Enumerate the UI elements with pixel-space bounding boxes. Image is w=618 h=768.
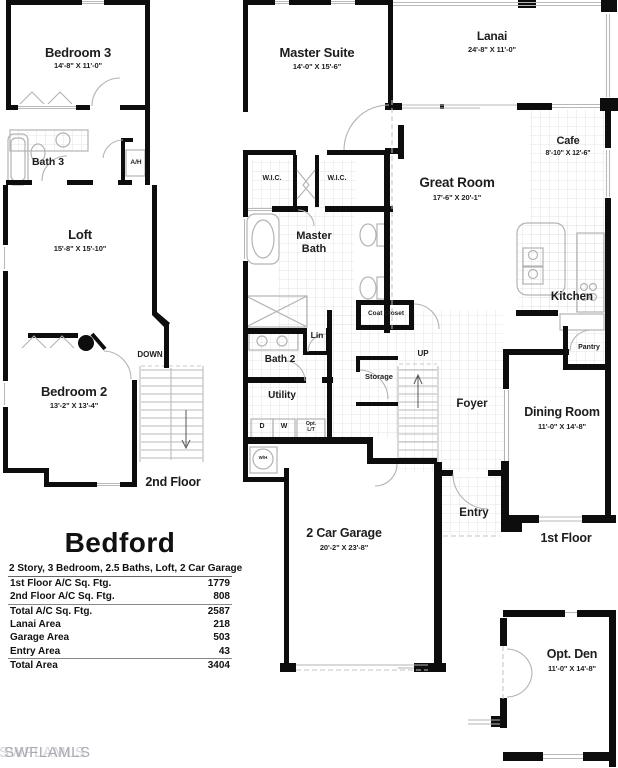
dims-bedroom3: 14'-8" X 11'-0" [54,62,102,70]
label-loft: Loft [68,228,92,242]
row-value: 808 [213,590,230,603]
label-dining-room: Dining Room [524,406,600,419]
label-bedroom2: Bedroom 2 [41,385,107,399]
dims-master-suite: 14'-0" X 15'-6" [293,63,341,71]
dims-lanai: 24'-8" X 11'-0" [468,46,516,54]
label-bath2: Bath 2 [265,355,296,366]
label-coat-closet: Coat Closet [368,311,404,318]
table-row: Total A/C Sq. Ftg. 2587 [8,605,232,618]
row-label: 2nd Floor A/C Sq. Ftg. [10,590,115,603]
stairs-down-second-floor [140,366,203,462]
label-great-room: Great Room [419,176,494,190]
row-label: Garage Area [10,631,69,644]
label-bath3: Bath 3 [32,157,64,168]
plan-title: Bedford [8,528,232,559]
label-lanai: Lanai [477,30,507,43]
dims-great-room: 17'-6" X 20'-1" [433,194,481,202]
dims-garage: 20'-2" X 23'-8" [320,544,368,552]
table-row: Lanai Area 218 [8,618,232,631]
table-row: Entry Area 43 [8,645,232,659]
dims-dining-room: 11'-0" X 14'-8" [538,423,586,431]
label-water-heater: W/H [259,456,268,461]
row-label: Total Area [10,659,58,672]
label-storage: Storage [365,373,393,381]
label-wic-left: W.I.C. [262,175,281,182]
tile-floors [10,110,606,535]
mls-watermark: SWFLAMLS [4,744,91,761]
table-row: Total Area 3404 [8,659,232,672]
label-first-floor: 1st Floor [541,532,592,545]
label-down: DOWN [137,351,162,359]
label-opt-den: Opt. Den [547,648,597,661]
label-master-bath: Master Bath [290,230,338,256]
row-value: 2587 [208,605,230,618]
label-bedroom3: Bedroom 3 [45,46,111,60]
label-wic-right: W.I.C. [327,175,346,182]
table-row: 2nd Floor A/C Sq. Ftg. 808 [8,590,232,604]
pivot-door-leaf [92,334,105,349]
label-washer: W [281,423,288,430]
label-ah: A/H [130,160,141,167]
dims-cafe: 8'-10" X 12'-6" [545,150,590,157]
label-entry: Entry [459,507,488,519]
label-second-floor: 2nd Floor [145,476,200,489]
label-up: UP [417,350,428,358]
label-foyer: Foyer [456,398,487,410]
label-lin: Lin [311,331,324,340]
row-label: Total A/C Sq. Ftg. [10,605,92,618]
row-value: 218 [213,618,230,631]
spec-table: Bedford 2 Story, 3 Bedroom, 2.5 Baths, L… [8,528,232,673]
label-master-suite: Master Suite [280,46,355,60]
label-opt-lt: Opt. L/T [302,421,320,433]
label-utility: Utility [268,391,296,402]
dims-loft: 15'-8" X 15'-10" [54,245,106,253]
label-dryer: D [259,423,264,430]
row-label: Entry Area [10,645,60,658]
row-label: Lanai Area [10,618,61,631]
row-value: 1779 [208,577,230,590]
floor-plan-page: { "watermark": "SWFLAMLS", "plan": { "se… [0,0,618,768]
label-garage: 2 Car Garage [306,527,381,540]
label-kitchen: Kitchen [551,291,593,303]
table-row: 1st Floor A/C Sq. Ftg. 1779 [8,577,232,590]
dims-bedroom2: 13'-2" X 13'-4" [50,402,98,410]
plan-subtitle: 2 Story, 3 Bedroom, 2.5 Baths, Loft, 2 C… [8,563,232,577]
row-label: 1st Floor A/C Sq. Ftg. [10,577,111,590]
row-value: 3404 [208,659,230,672]
row-value: 43 [219,645,230,658]
dims-opt-den: 11'-0" X 14'-8" [548,665,596,673]
label-cafe: Cafe [556,136,579,148]
row-value: 503 [213,631,230,644]
label-pantry: Pantry [578,344,600,351]
table-row: Garage Area 503 [8,631,232,644]
